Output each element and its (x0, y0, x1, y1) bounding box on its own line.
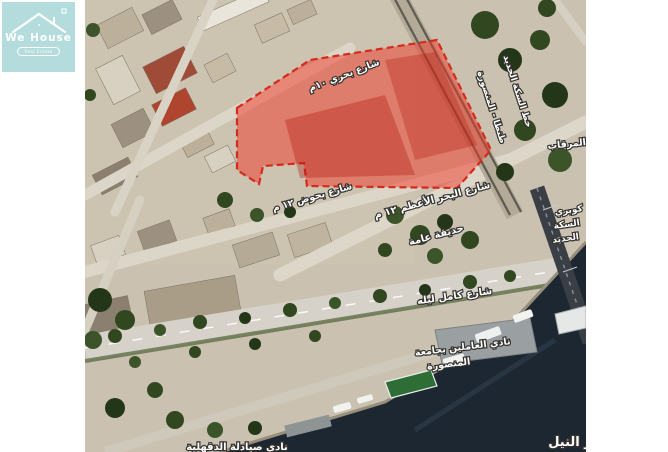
we-house-logo: We House Real Estate (2, 2, 75, 72)
satellite-map-canvas: شارع بحري ١٠م خط السكة الحديد طنطا - الم… (85, 0, 586, 452)
satellite-map[interactable]: شارع بحري ١٠م خط السكة الحديد طنطا - الم… (85, 0, 586, 452)
logo-title: We House (5, 32, 72, 44)
map-label-nile-river: نهر النيل (548, 435, 586, 450)
house-roof-icon (9, 8, 69, 34)
logo-tagline: Real Estate (17, 47, 59, 56)
map-label-pharmacists-club: نادي صيادلة الدقهلية (186, 442, 288, 452)
listing-map-page: We House Real Estate (0, 0, 668, 452)
